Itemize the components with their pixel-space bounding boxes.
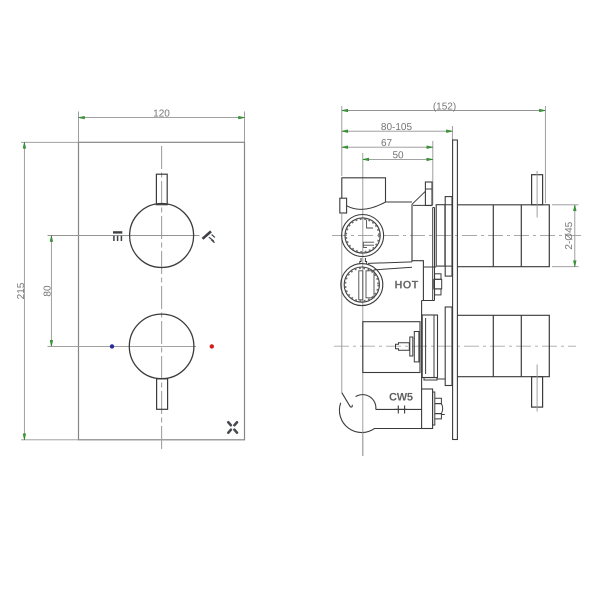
svg-text:120: 120	[153, 108, 170, 119]
svg-text:CW5: CW5	[389, 392, 413, 404]
svg-text:50: 50	[392, 150, 404, 161]
svg-text:67: 67	[381, 138, 393, 149]
svg-text:215: 215	[16, 282, 27, 299]
svg-text:80-105: 80-105	[381, 122, 413, 133]
svg-text:HOT: HOT	[394, 279, 418, 291]
svg-text:(152): (152)	[433, 101, 456, 112]
svg-text:2-Ø45: 2-Ø45	[564, 221, 575, 249]
svg-text:80: 80	[42, 285, 53, 297]
